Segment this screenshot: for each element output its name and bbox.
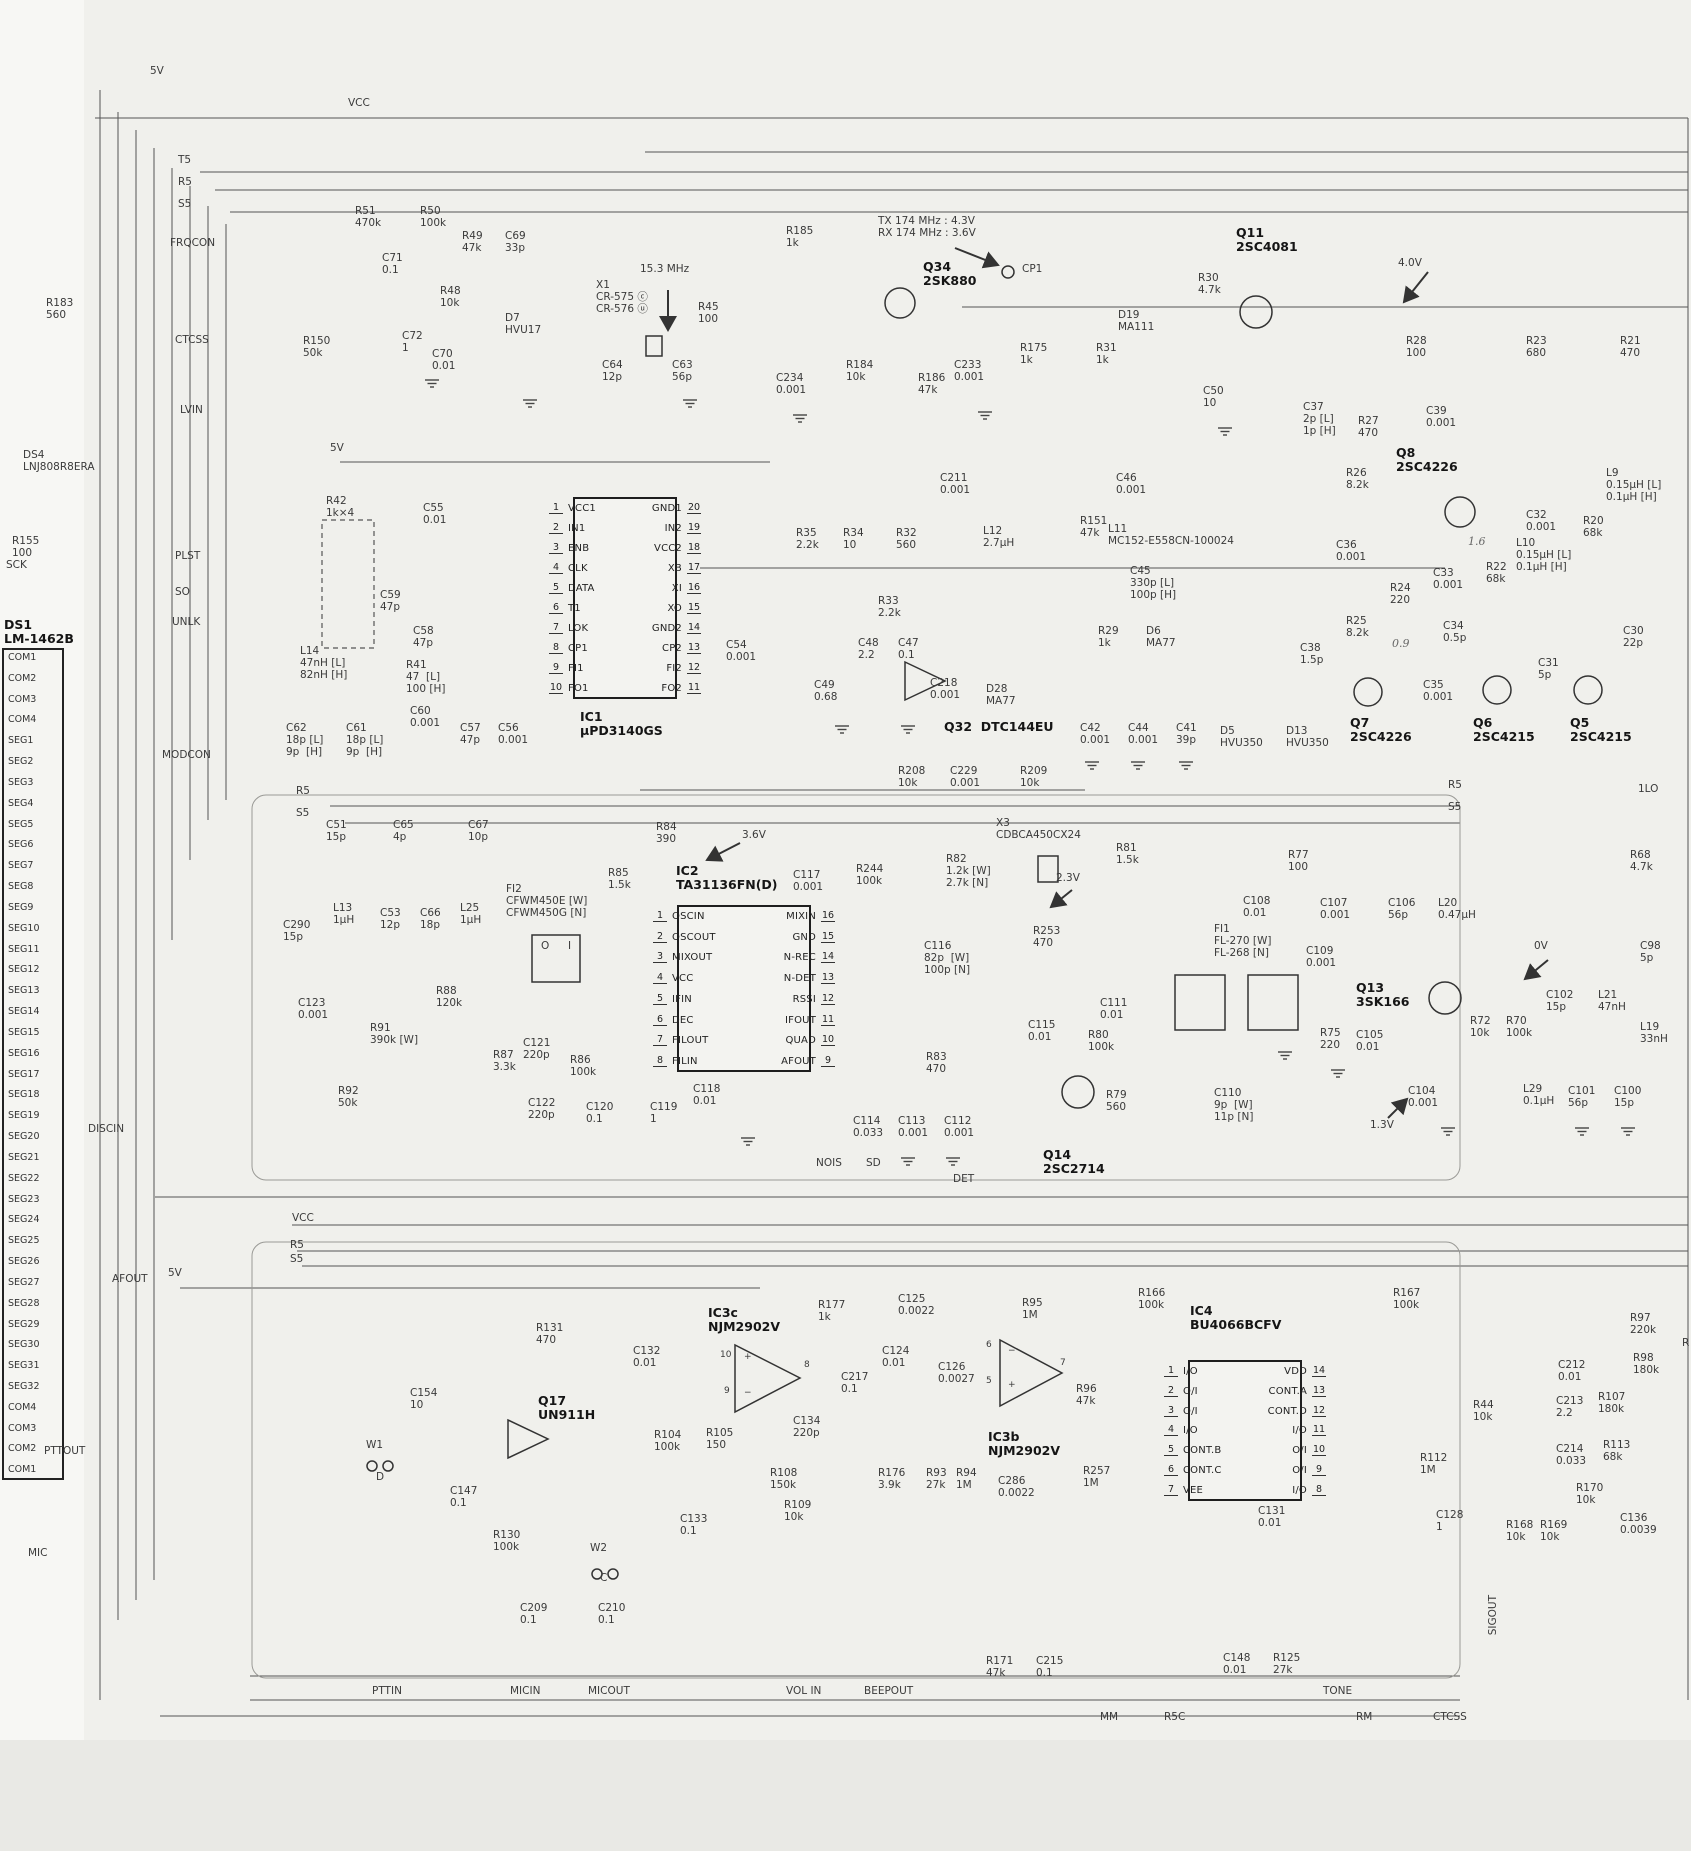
label-unlk: UNLK (172, 617, 200, 629)
label-c71: C71 0.1 (382, 253, 403, 277)
label-micin: MICIN (510, 1686, 540, 1698)
connector-row-com4: COM4 (4, 715, 62, 725)
label-t5: T5 (178, 155, 191, 167)
label-r22: R22 68k (1486, 562, 1507, 586)
label-c229: C229 0.001 (950, 766, 980, 790)
pin-n-rec: N-REC14 (784, 951, 835, 963)
label-beepout: BEEPOUT (864, 1686, 913, 1698)
connector-row-seg30: SEG30 (4, 1340, 62, 1350)
label-c108: C108 0.01 (1243, 896, 1270, 920)
label-sigout: SIGOUT (1488, 1595, 1500, 1635)
label-r25: R25 8.2k (1346, 616, 1369, 640)
pin-vcc: 4VCC (653, 972, 716, 984)
connector-row-com1: COM1 (4, 653, 62, 663)
label-c217: C217 0.1 (841, 1372, 868, 1396)
label-r84: R84 390 (656, 822, 677, 846)
label-c114: C114 0.033 (853, 1116, 883, 1140)
label-c51: C51 15p (326, 820, 347, 844)
label-r21: R21 470 (1620, 336, 1641, 360)
label-pttin: PTTIN (372, 1686, 402, 1698)
connector-row-seg19: SEG19 (4, 1111, 62, 1121)
connector-row-seg10: SEG10 (4, 924, 62, 934)
label-vol-in: VOL IN (786, 1686, 821, 1698)
label-d5: D5 HVU350 (1220, 726, 1263, 750)
label-l13: L13 1µH (333, 903, 354, 927)
label-3-6v: 3.6V (742, 830, 766, 842)
label-r88: R88 120k (436, 986, 462, 1010)
connector-row-com4: COM4 (4, 1403, 62, 1413)
label-r83: R83 470 (926, 1052, 947, 1076)
pin-oscin: 1OSCIN (653, 910, 716, 922)
label-r45: R45 100 (698, 302, 719, 326)
label-modcon: MODCON (162, 750, 211, 762)
label-l29: L29 0.1µH (1523, 1084, 1554, 1108)
label-r44: R44 10k (1473, 1400, 1494, 1424)
pin-vcc2: VCC218 (654, 542, 701, 554)
label-2-3v: 2.3V (1056, 873, 1080, 885)
label-c107: C107 0.001 (1320, 898, 1350, 922)
label-c211: C211 0.001 (940, 473, 970, 497)
label-s5: S5 (296, 808, 309, 820)
connector-row-seg8: SEG8 (4, 882, 62, 892)
label-c110: C110 9p [W] 11p [N] (1214, 1088, 1253, 1123)
label-c286: C286 0.0022 (998, 1476, 1035, 1500)
label-c218: C218 0.001 (930, 678, 960, 702)
label-r184: R184 10k (846, 360, 873, 384)
pin-cont-c: 6CONT.C (1164, 1464, 1222, 1476)
label-c58: C58 47p (413, 626, 434, 650)
pin-vee: 7VEE (1164, 1484, 1222, 1496)
connector-row-seg27: SEG27 (4, 1278, 62, 1288)
connector-row-seg16: SEG16 (4, 1049, 62, 1059)
label-r91: R91 390k [W] (370, 1023, 418, 1047)
label-r81: R81 1.5k (1116, 843, 1139, 867)
label-r169: R169 10k (1540, 1520, 1567, 1544)
label-r105: R105 150 (706, 1428, 733, 1452)
label-r175: R175 1k (1020, 343, 1047, 367)
connector-row-seg11: SEG11 (4, 945, 62, 955)
label-mm: MM (1100, 1712, 1118, 1724)
label-c136: C136 0.0039 (1620, 1513, 1657, 1537)
label-c116: C116 82p [W] 100p [N] (924, 941, 970, 976)
label-r176: R176 3.9k (878, 1468, 905, 1492)
label-l19: L19 33nH (1640, 1022, 1668, 1046)
label-r95: R95 1M (1022, 1298, 1043, 1322)
pin-cont-b: 5CONT.B (1164, 1444, 1222, 1456)
label-l10: L10 0.15µH [L] 0.1µH [H] (1516, 538, 1571, 573)
label-c102: C102 15p (1546, 990, 1573, 1014)
label-c212: C212 0.01 (1558, 1360, 1585, 1384)
label-c39: C39 0.001 (1426, 406, 1456, 430)
label-r34: R34 10 (843, 528, 864, 552)
label-r5: R5 (1448, 780, 1462, 792)
label-lvin: LVIN (180, 405, 203, 417)
schematic-wires (0, 0, 1691, 1851)
label-c36: C36 0.001 (1336, 540, 1366, 564)
label-c113: C113 0.001 (898, 1116, 928, 1140)
label-r104: R104 100k (654, 1430, 681, 1454)
label-5: 5 (986, 1376, 992, 1386)
label-ic3b: IC3b NJM2902V (988, 1430, 1060, 1458)
connector-row-seg23: SEG23 (4, 1195, 62, 1205)
pin-cont-d: CONT.D12 (1268, 1405, 1326, 1417)
label-c55: C55 0.01 (423, 503, 446, 527)
display-connector-ds1: COM1COM2COM3COM4SEG1SEG2SEG3SEG4SEG5SEG6… (2, 648, 64, 1480)
label-c128: C128 1 (1436, 1510, 1463, 1534)
connector-row-seg15: SEG15 (4, 1028, 62, 1038)
label-micout: MICOUT (588, 1686, 630, 1698)
pin-quad: QUAD10 (785, 1034, 835, 1046)
label-ds4: DS4 LNJ808R8ERA (23, 450, 95, 474)
connector-row-seg1: SEG1 (4, 736, 62, 746)
pin-cp1: 8CP1 (549, 642, 596, 654)
label-c63: C63 56p (672, 360, 693, 384)
label-c154: C154 10 (410, 1388, 437, 1412)
label-10: 10 (720, 1350, 731, 1360)
label-c48: C48 2.2 (858, 638, 879, 662)
label-c35: C35 0.001 (1423, 680, 1453, 704)
connector-row-seg22: SEG22 (4, 1174, 62, 1184)
label-r30: R30 4.7k (1198, 273, 1221, 297)
pin-vdd: VDD14 (1284, 1365, 1326, 1377)
label-c30: C30 22p (1623, 626, 1644, 650)
label-r208: R208 10k (898, 766, 925, 790)
connector-row-seg2: SEG2 (4, 757, 62, 767)
label-1lo: 1LO (1638, 784, 1658, 796)
label-5v: 5V (330, 443, 344, 455)
label-c234: C234 0.001 (776, 373, 806, 397)
label-r183: R183 560 (46, 298, 73, 322)
label-c111: C111 0.01 (1100, 998, 1127, 1022)
label-c: C (600, 1573, 607, 1585)
pin-oscout: 2OSCOUT (653, 931, 716, 943)
label-l12: L12 2.7µH (983, 526, 1014, 550)
label-r5: R5 (178, 177, 192, 189)
connector-row-seg12: SEG12 (4, 965, 62, 975)
label-so: SO (175, 587, 190, 599)
connector-row-seg6: SEG6 (4, 840, 62, 850)
label-d7: D7 HVU17 (505, 313, 541, 337)
connector-row-seg29: SEG29 (4, 1320, 62, 1330)
label-r72: R72 10k (1470, 1016, 1491, 1040)
ic2-if-ta31136fn-pins-pl: 1OSCIN2OSCOUT3MIXOUT4VCC5IFIN6DEC7FILOUT… (653, 910, 716, 1067)
label-c122: C122 220p (528, 1098, 555, 1122)
pin-i-o: I/O11 (1292, 1424, 1326, 1436)
label-r79: R79 560 (1106, 1090, 1127, 1114)
label-c106: C106 56p (1388, 898, 1415, 922)
label-q8: Q8 2SC4226 (1396, 446, 1458, 474)
label-s5: S5 (290, 1254, 303, 1266)
ic4-switch-bu4066bcfv-pins-pl: 1I/O2O/I3O/I4I/O5CONT.B6CONT.C7VEE (1164, 1365, 1222, 1496)
label-c148: C148 0.01 (1223, 1653, 1250, 1677)
label-r24: R24 220 (1390, 583, 1411, 607)
pin-mixin: MIXIN16 (786, 910, 835, 922)
label-r93: R93 27k (926, 1468, 947, 1492)
label-c134: C134 220p (793, 1416, 820, 1440)
label-l20: L20 0.47µH (1438, 898, 1476, 922)
label-r31: R31 1k (1096, 343, 1117, 367)
label-discin: DISCIN (88, 1124, 124, 1136)
label-r51: R51 470k (355, 206, 381, 230)
label-r32: R32 560 (896, 528, 917, 552)
label-q34: Q34 2SK880 (923, 260, 976, 288)
label-r244: R244 100k (856, 864, 883, 888)
label-plst: PLST (175, 551, 200, 563)
label-r26: R26 8.2k (1346, 468, 1369, 492)
connector-row-seg13: SEG13 (4, 986, 62, 996)
pin-lok: 7LOK (549, 622, 596, 634)
connector-row-seg18: SEG18 (4, 1090, 62, 1100)
pin-xi: XI16 (672, 582, 701, 594)
label-r70: R70 100k (1506, 1016, 1532, 1040)
label-r130: R130 100k (493, 1530, 520, 1554)
label-7: 7 (1060, 1358, 1066, 1368)
connector-row-com3: COM3 (4, 695, 62, 705)
label-r109: R109 10k (784, 1500, 811, 1524)
label-r108: R108 150k (770, 1468, 797, 1492)
label-r92: R92 50k (338, 1086, 359, 1110)
pin-rssi: RSSI12 (793, 993, 835, 1005)
label-r33: R33 2.2k (878, 596, 901, 620)
label-15-3-mhz: 15.3 MHz (640, 264, 689, 276)
label-afout: AFOUT (112, 1274, 148, 1286)
label-d13: D13 HVU350 (1286, 726, 1329, 750)
label-8: 8 (804, 1360, 810, 1370)
label-r125: R125 27k (1273, 1653, 1300, 1677)
label-1-3v: 1.3V (1370, 1120, 1394, 1132)
label-sd: SD (866, 1158, 881, 1170)
label-q6: Q6 2SC4215 (1473, 716, 1535, 744)
label-cp1: CP1 (1022, 264, 1042, 276)
label-c115: C115 0.01 (1028, 1020, 1055, 1044)
label-c124: C124 0.01 (882, 1346, 909, 1370)
connector-row-seg17: SEG17 (4, 1070, 62, 1080)
connector-row-seg5: SEG5 (4, 820, 62, 830)
label-r5: R5 (290, 1240, 304, 1252)
label-c120: C120 0.1 (586, 1102, 613, 1126)
label-r96: R96 47k (1076, 1384, 1097, 1408)
label-r112: R112 1M (1420, 1453, 1447, 1477)
label-0v: 0V (1534, 941, 1548, 953)
label-c290: C290 15p (283, 920, 310, 944)
label-q14: Q14 2SC2714 (1043, 1148, 1105, 1176)
label-c41: C41 39p (1176, 723, 1197, 747)
label-c117: C117 0.001 (793, 870, 823, 894)
label-r171: R171 47k (986, 1656, 1013, 1680)
label-r85: R85 1.5k (608, 868, 631, 892)
label--: − (1008, 1346, 1016, 1356)
label-c119: C119 1 (650, 1102, 677, 1126)
label-rm: RM (1356, 1712, 1372, 1724)
label-r150: R150 50k (303, 336, 330, 360)
pin-gnd1: GND120 (652, 502, 701, 514)
label-s5: S5 (1448, 802, 1461, 814)
label-c147: C147 0.1 (450, 1486, 477, 1510)
label-c45: C45 330p [L] 100p [H] (1130, 566, 1176, 601)
label-r131: R131 470 (536, 1323, 563, 1347)
pin-fi1: 9FI1 (549, 662, 596, 674)
label-ctcss: CTCSS (175, 335, 209, 347)
ic1-pll-upd3140gs-pins-pr: GND120IN219VCC218XB17XI16XO15GND214CP213… (652, 502, 701, 694)
label-c65: C65 4p (393, 820, 414, 844)
label-c210: C210 0.1 (598, 1603, 625, 1627)
label-fi2: FI2 CFWM450E [W] CFWM450G [N] (506, 884, 587, 919)
label-c33: C33 0.001 (1433, 568, 1463, 592)
label-x1: X1 CR-575 ⓒ CR-576 ⓤ (596, 280, 648, 315)
label-r68: R68 4.7k (1630, 850, 1653, 874)
label-9: 9 (724, 1386, 730, 1396)
label-r28: R28 100 (1406, 336, 1427, 360)
label-r97: R97 220k (1630, 1313, 1656, 1337)
label-r151: R151 47k (1080, 516, 1107, 540)
label-sck: SCK (6, 560, 27, 572)
label-c32: C32 0.001 (1526, 510, 1556, 534)
label-r86: R86 100k (570, 1055, 596, 1079)
label-r29: R29 1k (1098, 626, 1119, 650)
label-5v: 5V (150, 66, 164, 78)
label-c57: C57 47p (460, 723, 481, 747)
label-c37: C37 2p [L] 1p [H] (1303, 402, 1336, 437)
pin-i-o: 1I/O (1164, 1365, 1222, 1377)
label-s5: S5 (178, 199, 191, 211)
label-c34: C34 0.5p (1443, 621, 1466, 645)
label-c98: C98 5p (1640, 941, 1661, 965)
pin-o-i: O/I10 (1292, 1444, 1326, 1456)
pin-i-o: I/O8 (1292, 1484, 1326, 1496)
label-1-6: 1.6 (1468, 536, 1486, 548)
label-c49: C49 0.68 (814, 680, 837, 704)
ic1-pll-upd3140gs-pins-pl: 1VCC12IN13ENB4CLK5DATA6T17LOK8CP19FI110F… (549, 502, 596, 694)
label-c59: C59 47p (380, 590, 401, 614)
label-c31: C31 5p (1538, 658, 1559, 682)
label-c47: C47 0.1 (898, 638, 919, 662)
pin-clk: 4CLK (549, 562, 596, 574)
pin-o-i: 3O/I (1164, 1405, 1222, 1417)
label-d: D (376, 1472, 384, 1484)
connector-row-seg26: SEG26 (4, 1257, 62, 1267)
label-vcc: VCC (348, 98, 370, 110)
label-r186: R186 47k (918, 373, 945, 397)
label-r253: R253 470 (1033, 926, 1060, 950)
pin-cont-a: CONT.A13 (1269, 1385, 1326, 1397)
label-r257: R257 1M (1083, 1466, 1110, 1490)
label-w1: W1 (366, 1440, 383, 1452)
pin-gnd: GND15 (792, 931, 835, 943)
label-c215: C215 0.1 (1036, 1656, 1063, 1680)
label-r42: R42 1k×4 (326, 496, 354, 520)
pin-filout: 7FILOUT (653, 1034, 716, 1046)
pin-o-i: O/I9 (1292, 1464, 1326, 1476)
label-l9: L9 0.15µH [L] 0.1µH [H] (1606, 468, 1661, 503)
label--: − (744, 1388, 752, 1398)
schematic-canvas: 1VCC12IN13ENB4CLK5DATA6T17LOK8CP19FI110F… (0, 0, 1691, 1851)
label-l14: L14 47nH [L] 82nH [H] (300, 646, 347, 681)
label-q13: Q13 3SK166 (1356, 981, 1409, 1009)
label-4-0v: 4.0V (1398, 258, 1422, 270)
pin-ifin: 5IFIN (653, 993, 716, 1005)
label-c72: C72 1 (402, 331, 423, 355)
pin-fo1: 10FO1 (549, 682, 596, 694)
label-c66: C66 18p (420, 908, 441, 932)
label-c105: C105 0.01 (1356, 1030, 1383, 1054)
label-r166: R166 100k (1138, 1288, 1165, 1312)
label-d28: D28 MA77 (986, 684, 1016, 708)
connector-row-seg21: SEG21 (4, 1153, 62, 1163)
pin-gnd2: GND214 (652, 622, 701, 634)
label-c133: C133 0.1 (680, 1514, 707, 1538)
label-r170: R170 10k (1576, 1483, 1603, 1507)
connector-row-seg9: SEG9 (4, 903, 62, 913)
label-c118: C118 0.01 (693, 1084, 720, 1108)
label-c112: C112 0.001 (944, 1116, 974, 1140)
label-c214: C214 0.033 (1556, 1444, 1586, 1468)
label-tx-174-mhz-4-3v: TX 174 MHz : 4.3V RX 174 MHz : 3.6V (878, 216, 976, 240)
label-r168: R168 10k (1506, 1520, 1533, 1544)
label-c132: C132 0.01 (633, 1346, 660, 1370)
label-r82: R82 1.2k [W] 2.7k [N] (946, 854, 991, 889)
label-c126: C126 0.0027 (938, 1362, 975, 1386)
label--: + (1008, 1380, 1016, 1390)
label-c121: C121 220p (523, 1038, 550, 1062)
label-c61: C61 18p [L] 9p [H] (346, 723, 383, 758)
connector-row-com3: COM3 (4, 1424, 62, 1434)
label-c109: C109 0.001 (1306, 946, 1336, 970)
label-c44: C44 0.001 (1128, 723, 1158, 747)
label-l21: L21 47nH (1598, 990, 1626, 1014)
label-c67: C67 10p (468, 820, 489, 844)
label-r185: R185 1k (786, 226, 813, 250)
label-nois: NOIS (816, 1158, 842, 1170)
connector-row-seg28: SEG28 (4, 1299, 62, 1309)
label-q7: Q7 2SC4226 (1350, 716, 1412, 744)
pin-cp2: CP213 (662, 642, 701, 654)
label--: + (744, 1352, 752, 1362)
pin-xb: XB17 (668, 562, 701, 574)
connector-row-seg24: SEG24 (4, 1215, 62, 1225)
label-c62: C62 18p [L] 9p [H] (286, 723, 323, 758)
label-ctcss: CTCSS (1433, 1712, 1467, 1724)
label-d19: D19 MA111 (1118, 310, 1154, 334)
label-5v: 5V (168, 1268, 182, 1280)
connector-row-seg4: SEG4 (4, 799, 62, 809)
connector-row-com1: COM1 (4, 1465, 62, 1475)
connector-row-seg7: SEG7 (4, 861, 62, 871)
ic4-switch-bu4066bcfv: 1I/O2O/I3O/I4I/O5CONT.B6CONT.C7VEEVDD14C… (1188, 1360, 1302, 1501)
pin-mixout: 3MIXOUT (653, 951, 716, 963)
label-r41: R41 47 [L] 100 [H] (406, 660, 445, 695)
label-c101: C101 56p (1568, 1086, 1595, 1110)
label-x3: X3 CDBCA450CX24 (996, 818, 1081, 842)
label-det: DET (953, 1174, 974, 1186)
label-r107: R107 180k (1598, 1392, 1625, 1416)
label-r87: R87 3.3k (493, 1050, 516, 1074)
pin-vcc1: 1VCC1 (549, 502, 596, 514)
label-r20: R20 68k (1583, 516, 1604, 540)
label-r23: R23 680 (1526, 336, 1547, 360)
label-ic2: IC2 TA31136FN(D) (676, 864, 778, 892)
pin-in2: IN219 (665, 522, 701, 534)
pin-in1: 2IN1 (549, 522, 596, 534)
label-c42: C42 0.001 (1080, 723, 1110, 747)
label-pttout: PTTOUT (44, 1446, 85, 1458)
label-0-9: 0.9 (1392, 638, 1410, 650)
label-c131: C131 0.01 (1258, 1506, 1285, 1530)
label-c50: C50 10 (1203, 386, 1224, 410)
pin-t1: 6T1 (549, 602, 596, 614)
connector-row-seg20: SEG20 (4, 1132, 62, 1142)
pin-xo: XO15 (668, 602, 701, 614)
label-c70: C70 0.01 (432, 349, 455, 373)
